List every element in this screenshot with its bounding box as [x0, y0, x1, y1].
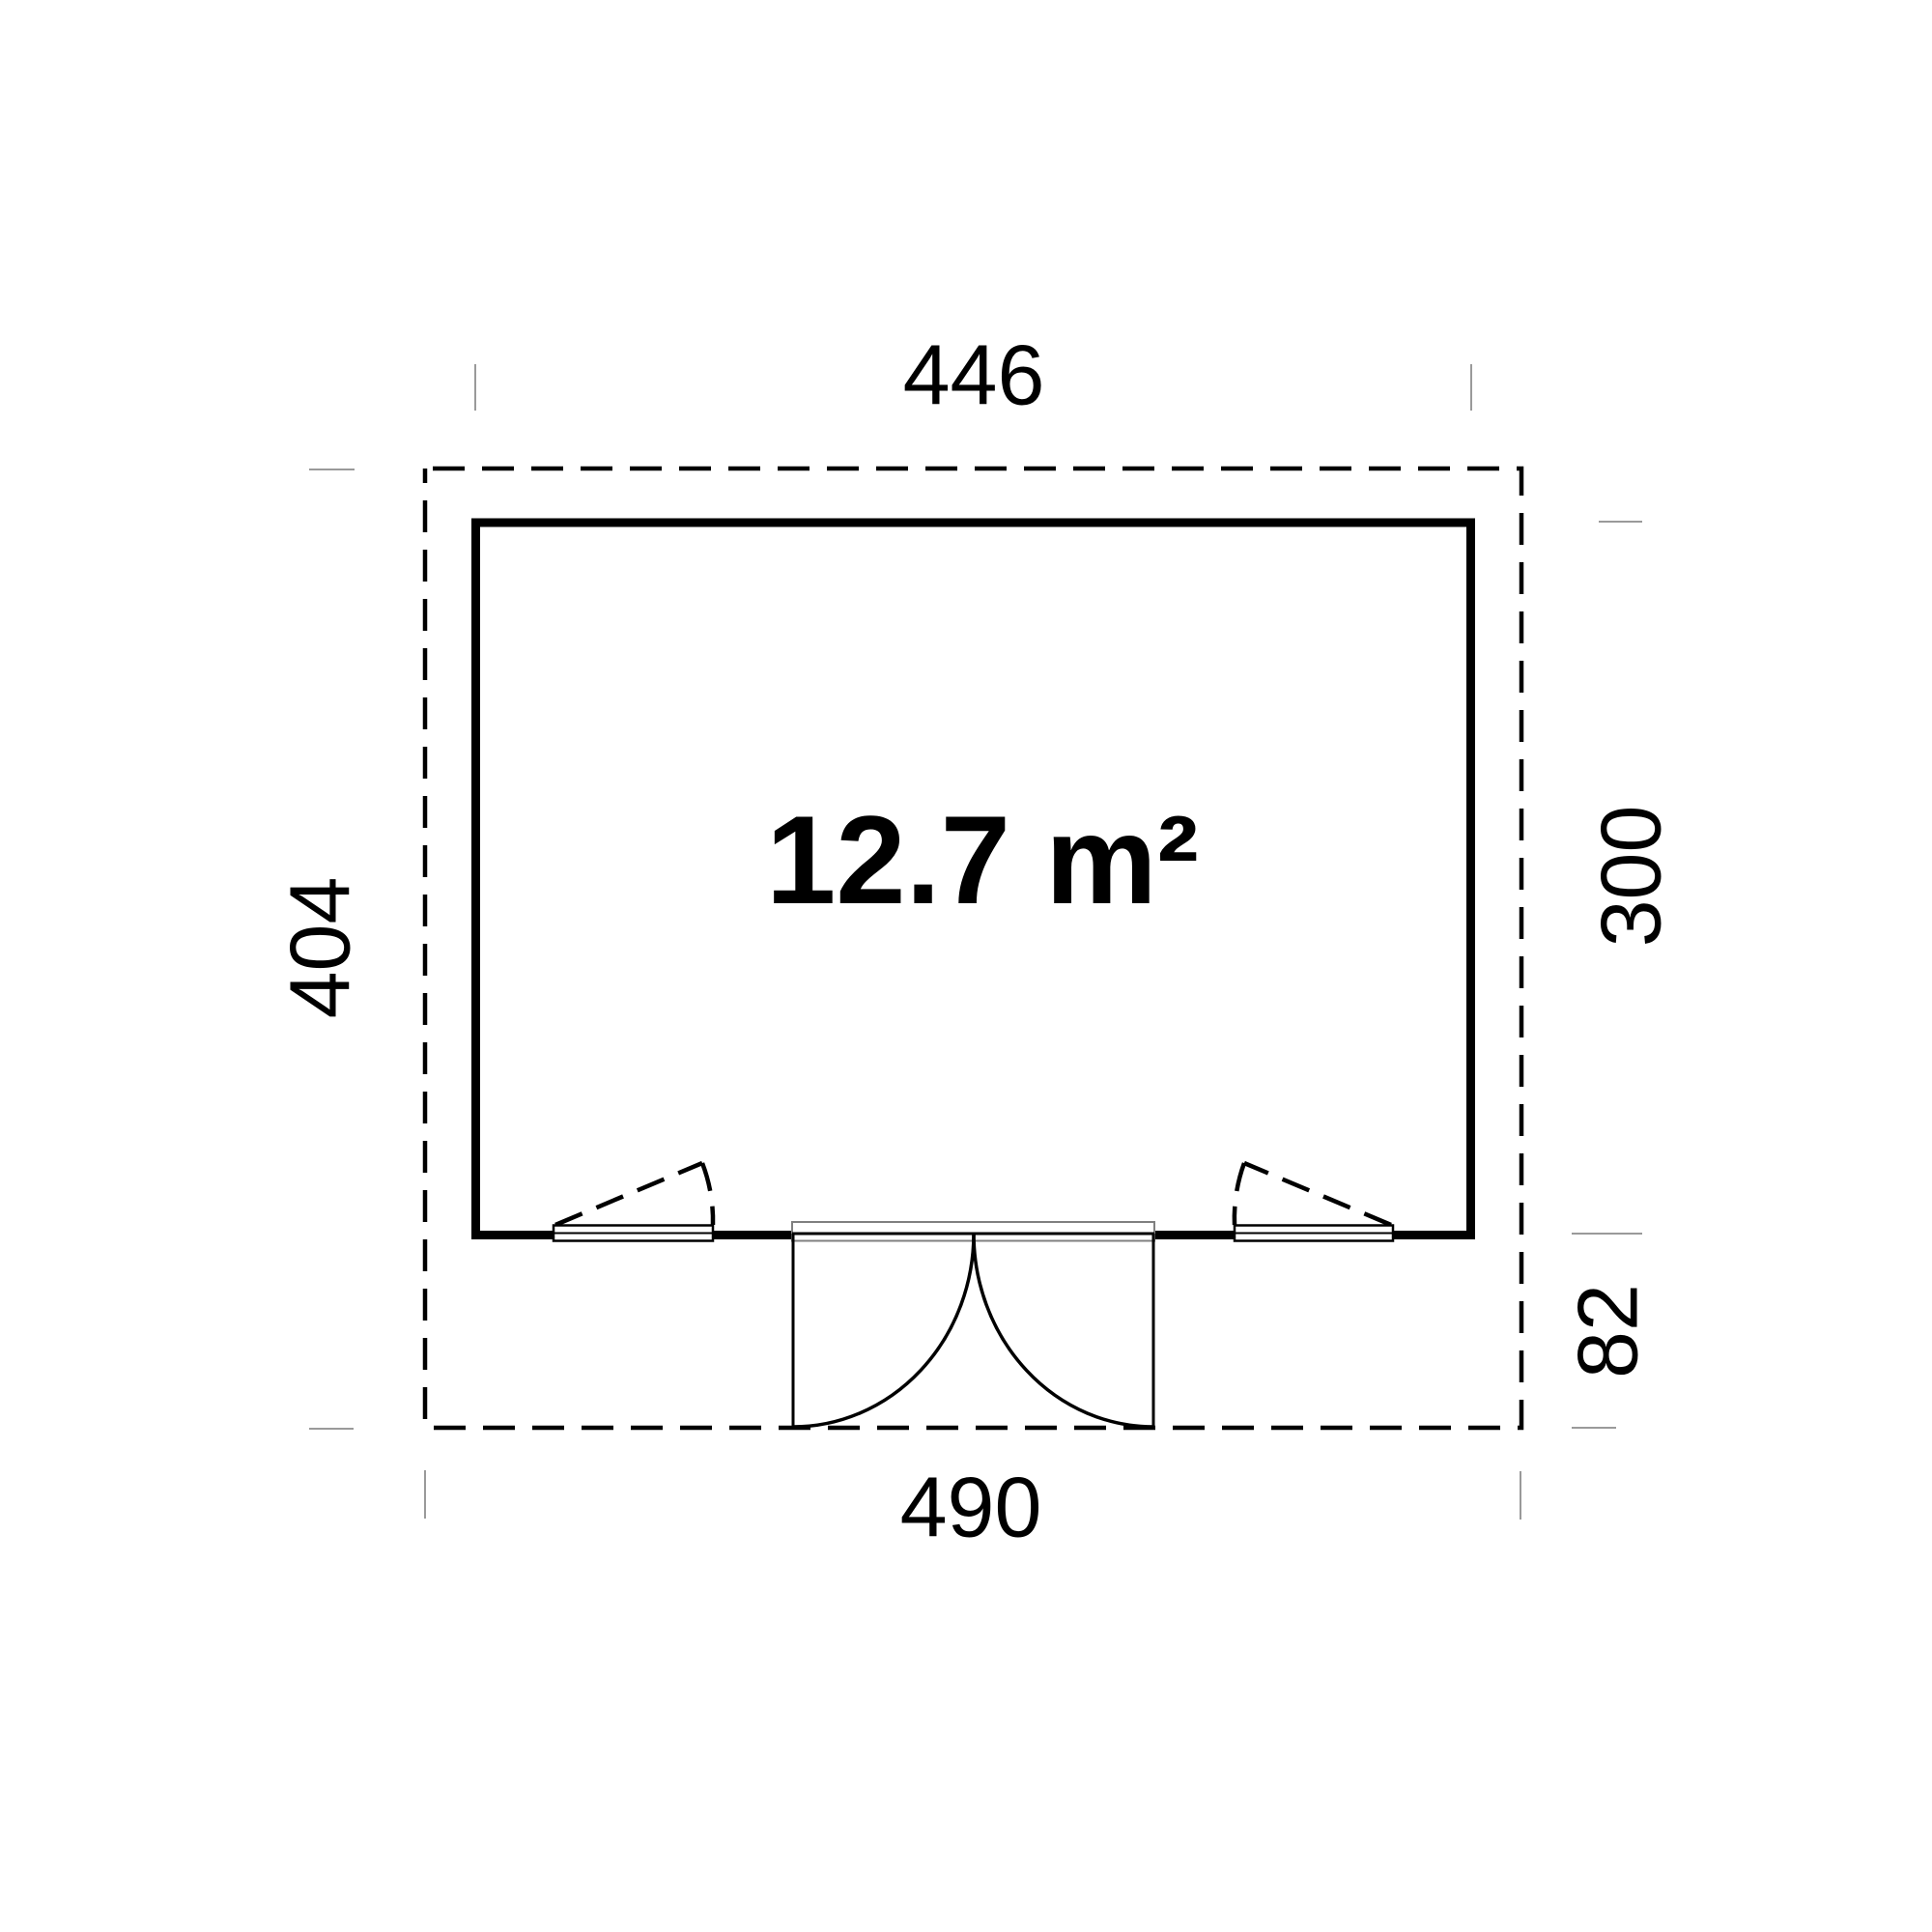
left-window-swing-arc — [702, 1163, 713, 1225]
dimension-label-right-overhang: 82 — [1560, 1284, 1656, 1378]
dimension-label-bottom-width: 490 — [900, 1460, 1042, 1555]
right-window — [1235, 1163, 1393, 1241]
dimension-label-top-width: 446 — [903, 327, 1045, 423]
floorplan-canvas: 446 404 300 82 490 12.7 m² — [0, 0, 1932, 1932]
double-door — [792, 1222, 1154, 1427]
door-right-swing-arc — [974, 1234, 1153, 1427]
door-left-swing-arc — [793, 1234, 974, 1427]
left-window — [554, 1163, 713, 1241]
right-window-swing-arc — [1235, 1163, 1244, 1225]
right-window-sash-open-line — [1244, 1163, 1391, 1225]
floor-area-label: 12.7 m² — [766, 789, 1199, 930]
dimension-label-right-depth: 300 — [1583, 806, 1679, 948]
left-window-sash-open-line — [555, 1163, 702, 1225]
floorplan-drawing: 446 404 300 82 490 12.7 m² — [0, 0, 1932, 1932]
dimension-label-left-depth: 404 — [272, 877, 368, 1019]
dimension-ticks — [309, 364, 1642, 1520]
outer-boundary-dashed-rect — [425, 469, 1521, 1428]
